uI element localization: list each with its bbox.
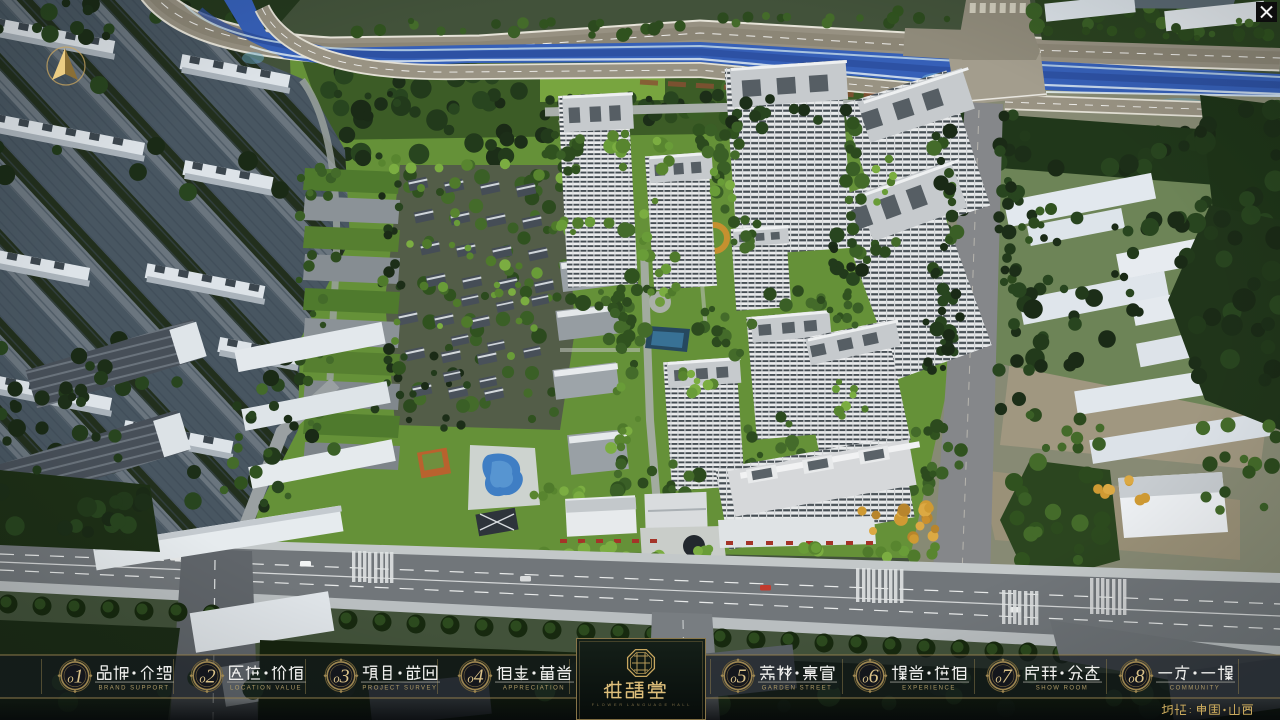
svg-text:COMMUNITY: COMMUNITY: [1170, 685, 1221, 691]
svg-text:PROJECT SURVEY: PROJECT SURVEY: [362, 685, 437, 691]
svg-text:GARDEN STREET: GARDEN STREET: [762, 685, 833, 691]
svg-text:BRAND SUPPORT: BRAND SUPPORT: [98, 685, 169, 691]
svg-text:APPRECIATION: APPRECIATION: [503, 685, 565, 691]
svg-text:SHOW ROOM: SHOW ROOM: [1036, 685, 1089, 691]
svg-text:EXPERIENCE: EXPERIENCE: [902, 685, 956, 691]
svg-text:F L O W E R L A N G U A G E: F L O W E R L A N G U A G E H A L L: [592, 703, 691, 707]
svg-text::: :: [1189, 705, 1192, 715]
svg-text:LOCATION VALUE: LOCATION VALUE: [230, 685, 302, 691]
